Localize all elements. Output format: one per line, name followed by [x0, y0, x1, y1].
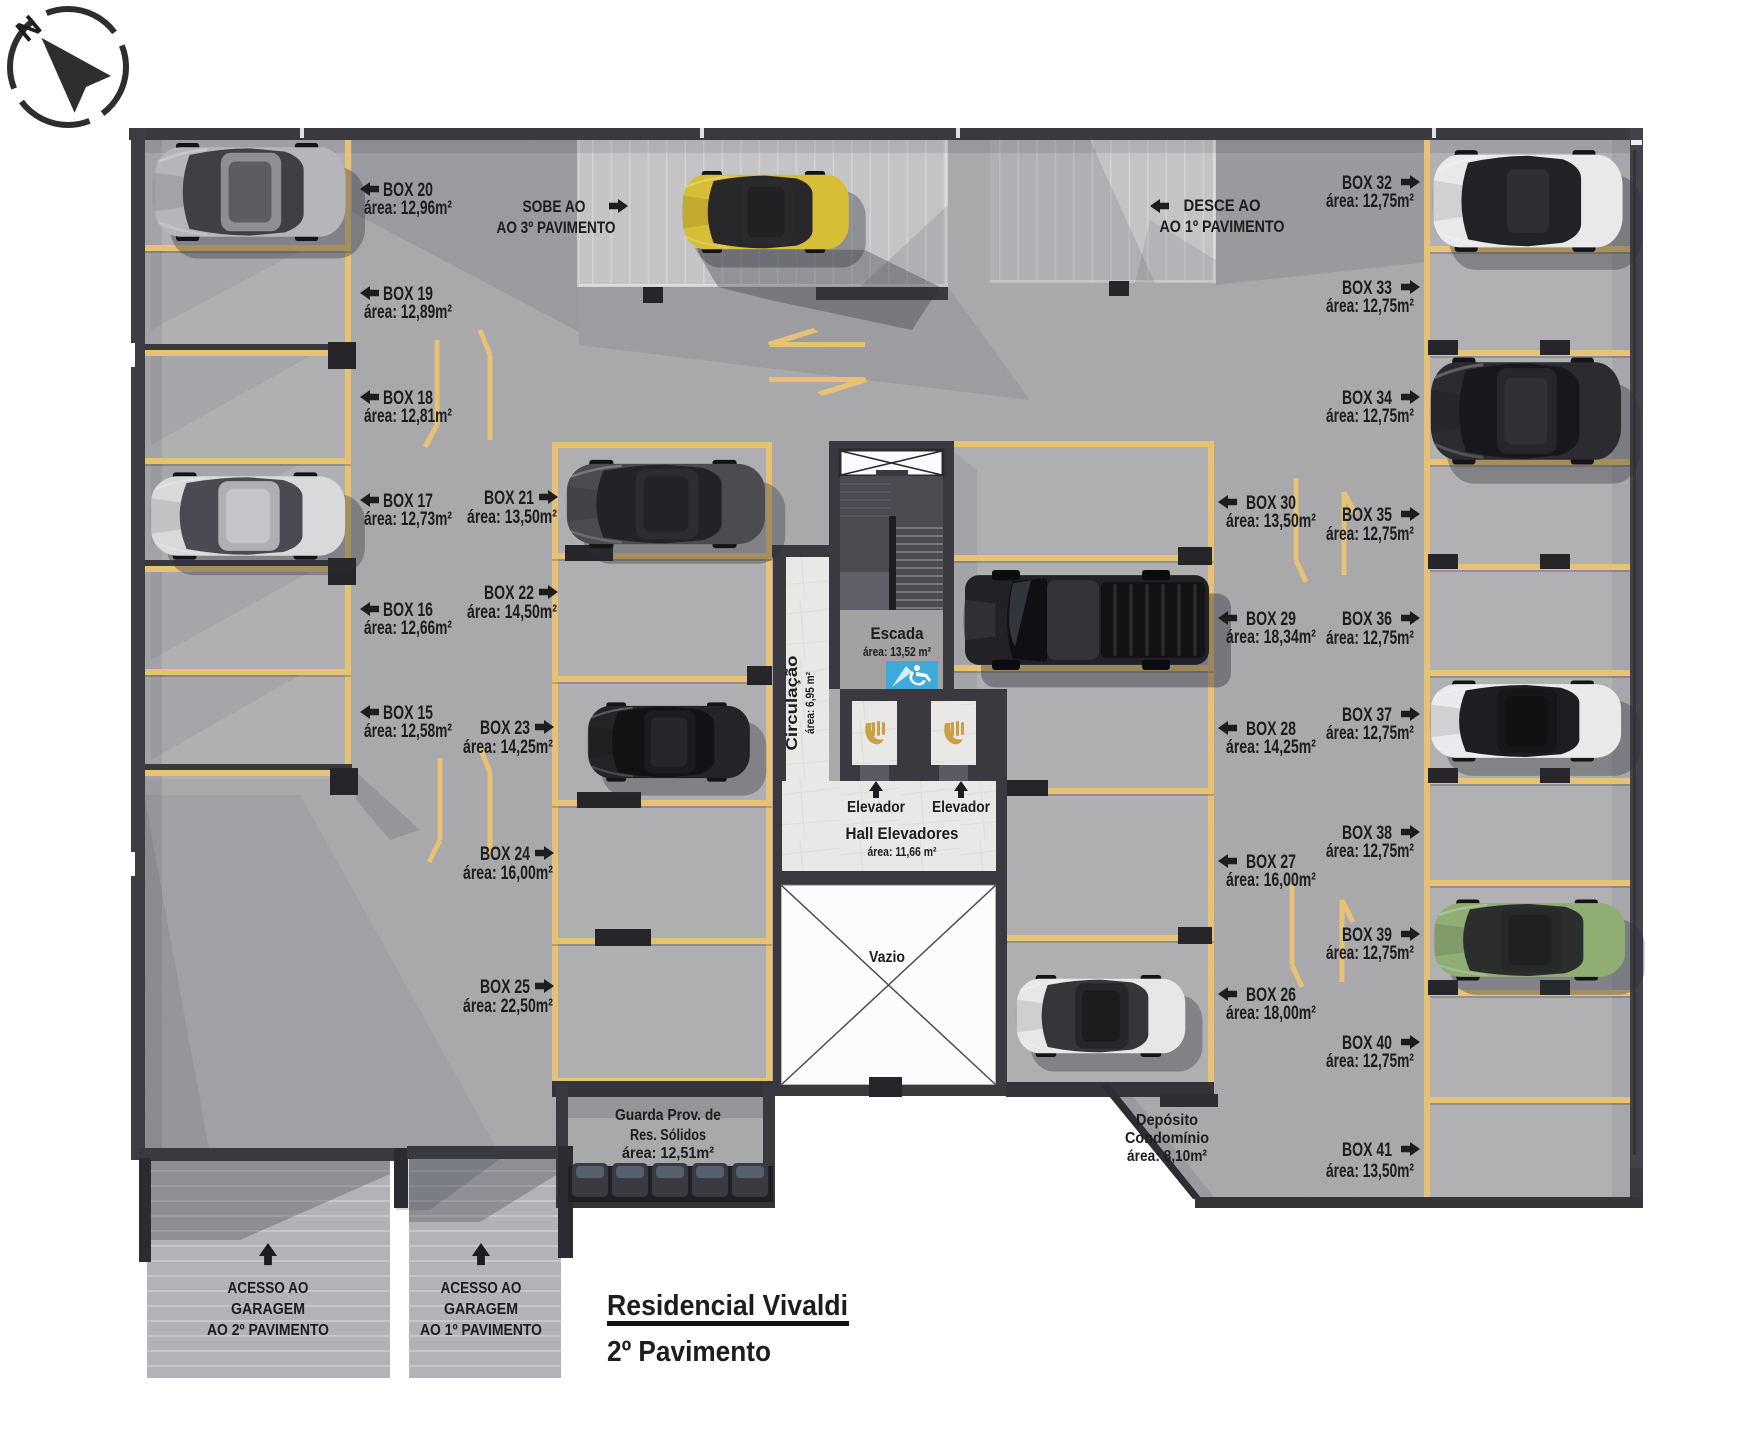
svg-text:área: 12,75m²: área: 12,75m² [1326, 191, 1414, 212]
svg-text:AO 1º PAVIMENTO: AO 1º PAVIMENTO [420, 1322, 542, 1339]
svg-text:ACESSO AO: ACESSO AO [441, 1280, 522, 1297]
svg-text:área: 12,75m²: área: 12,75m² [1326, 841, 1414, 862]
svg-text:área: 14,25m²: área: 14,25m² [1226, 737, 1316, 758]
svg-text:área: 12,75m²: área: 12,75m² [1326, 1051, 1414, 1072]
svg-text:Vazio: Vazio [869, 949, 905, 966]
svg-text:Escada: Escada [871, 624, 924, 643]
svg-text:BOX 41: BOX 41 [1342, 1140, 1392, 1161]
svg-text:área: 13,50m²: área: 13,50m² [467, 507, 557, 528]
svg-text:área: 12,75m²: área: 12,75m² [1326, 406, 1414, 427]
svg-text:área: 13,50m²: área: 13,50m² [1226, 511, 1316, 532]
svg-text:Condomínio: Condomínio [1125, 1130, 1209, 1147]
svg-text:SOBE AO: SOBE AO [523, 197, 586, 216]
svg-text:área: 6,95 m²: área: 6,95 m² [803, 672, 817, 734]
svg-text:Guarda Prov. de: Guarda Prov. de [615, 1107, 721, 1124]
svg-text:BOX 23: BOX 23 [480, 718, 530, 739]
svg-text:área: 11,66 m²: área: 11,66 m² [868, 844, 938, 859]
svg-text:GARAGEM: GARAGEM [444, 1301, 518, 1318]
svg-text:BOX 35: BOX 35 [1342, 505, 1392, 526]
svg-text:Res. Sólidos: Res. Sólidos [630, 1127, 706, 1144]
svg-text:BOX 25: BOX 25 [480, 977, 530, 998]
svg-text:área: 12,75m²: área: 12,75m² [1326, 524, 1414, 545]
svg-text:ACESSO AO: ACESSO AO [228, 1280, 309, 1297]
svg-text:área: 12,96m²: área: 12,96m² [364, 198, 452, 219]
svg-text:área: 12,89m²: área: 12,89m² [364, 302, 452, 323]
svg-text:BOX 21: BOX 21 [484, 488, 534, 509]
svg-text:GARAGEM: GARAGEM [231, 1301, 305, 1318]
svg-text:área: 13,52 m²: área: 13,52 m² [863, 644, 932, 659]
svg-text:área: 14,50m²: área: 14,50m² [467, 602, 557, 623]
svg-text:BOX 36: BOX 36 [1342, 609, 1392, 630]
svg-text:DESCE AO: DESCE AO [1184, 196, 1261, 215]
svg-text:área: 18,34m²: área: 18,34m² [1226, 627, 1316, 648]
svg-text:AO 2º PAVIMENTO: AO 2º PAVIMENTO [207, 1322, 329, 1339]
svg-text:área: 8,10m²: área: 8,10m² [1127, 1148, 1207, 1165]
svg-text:Elevador: Elevador [847, 799, 905, 816]
svg-text:área: 16,00m²: área: 16,00m² [463, 863, 553, 884]
svg-text:área: 12,75m²: área: 12,75m² [1326, 943, 1414, 964]
svg-text:área: 18,00m²: área: 18,00m² [1226, 1003, 1316, 1024]
svg-text:área: 22,50m²: área: 22,50m² [463, 996, 553, 1017]
svg-text:Residencial Vivaldi: Residencial Vivaldi [607, 1290, 848, 1322]
svg-text:área: 12,51m²: área: 12,51m² [622, 1145, 714, 1162]
svg-text:área: 14,25m²: área: 14,25m² [463, 737, 553, 758]
svg-text:área: 12,75m²: área: 12,75m² [1326, 628, 1414, 649]
svg-text:BOX 22: BOX 22 [484, 583, 534, 604]
svg-text:2º Pavimento: 2º Pavimento [607, 1336, 771, 1368]
svg-text:Depósito: Depósito [1136, 1112, 1198, 1129]
svg-text:Elevador: Elevador [932, 799, 990, 816]
svg-text:área: 13,50m²: área: 13,50m² [1326, 1161, 1414, 1182]
svg-text:área: 12,75m²: área: 12,75m² [1326, 723, 1414, 744]
svg-text:área: 12,58m²: área: 12,58m² [364, 721, 452, 742]
svg-text:área: 12,75m²: área: 12,75m² [1326, 296, 1414, 317]
svg-text:área: 12,73m²: área: 12,73m² [364, 509, 452, 530]
svg-text:AO 1º PAVIMENTO: AO 1º PAVIMENTO [1160, 217, 1285, 236]
svg-text:área: 16,00m²: área: 16,00m² [1226, 870, 1316, 891]
svg-text:AO 3º PAVIMENTO: AO 3º PAVIMENTO [497, 218, 616, 237]
svg-text:BOX 24: BOX 24 [480, 844, 530, 865]
svg-text:Hall Elevadores: Hall Elevadores [846, 824, 959, 843]
svg-text:Circulação: Circulação [784, 655, 801, 750]
svg-text:área: 12,66m²: área: 12,66m² [364, 618, 452, 639]
svg-text:área: 12,81m²: área: 12,81m² [364, 406, 452, 427]
